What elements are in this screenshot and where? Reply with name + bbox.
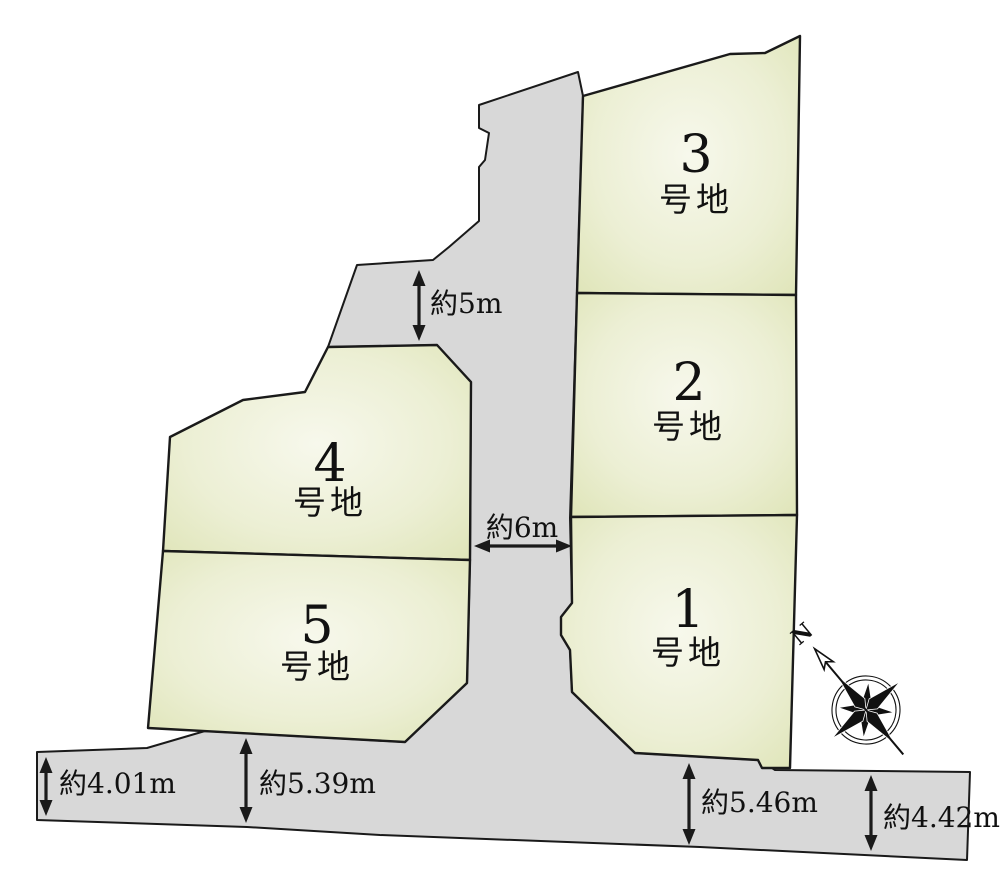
lot-3-suffix-label: 号地 <box>659 180 733 219</box>
dim-4-01m-label: 約4.01m <box>59 767 176 800</box>
lot-4-suffix-label: 号地 <box>293 483 367 522</box>
dim-5-46m-label: 約5.46m <box>701 786 818 819</box>
lot-3-number: 3 <box>679 125 712 185</box>
site-plan-page: 3号地2号地1号地4号地5号地 約5m約6m約4.01m約5.39m約5.46m… <box>0 0 1000 878</box>
dim-5-39m-label: 約5.39m <box>259 767 376 800</box>
lot-2-suffix-label: 号地 <box>652 407 726 446</box>
dim-6m-label: 約6m <box>486 511 558 544</box>
lot-layout-diagram: 3号地2号地1号地4号地5号地 約5m約6m約4.01m約5.39m約5.46m… <box>0 0 1000 878</box>
lot-5-suffix-label: 号地 <box>280 647 354 686</box>
dim-5m-label: 約5m <box>430 287 502 320</box>
dim-4-42m-label: 約4.42m <box>883 801 1000 834</box>
lot-1-number: 1 <box>671 580 704 640</box>
dim-6m: 約6m <box>474 511 572 553</box>
lot-2-number: 2 <box>672 353 705 413</box>
lot-1-suffix-label: 号地 <box>651 633 725 672</box>
